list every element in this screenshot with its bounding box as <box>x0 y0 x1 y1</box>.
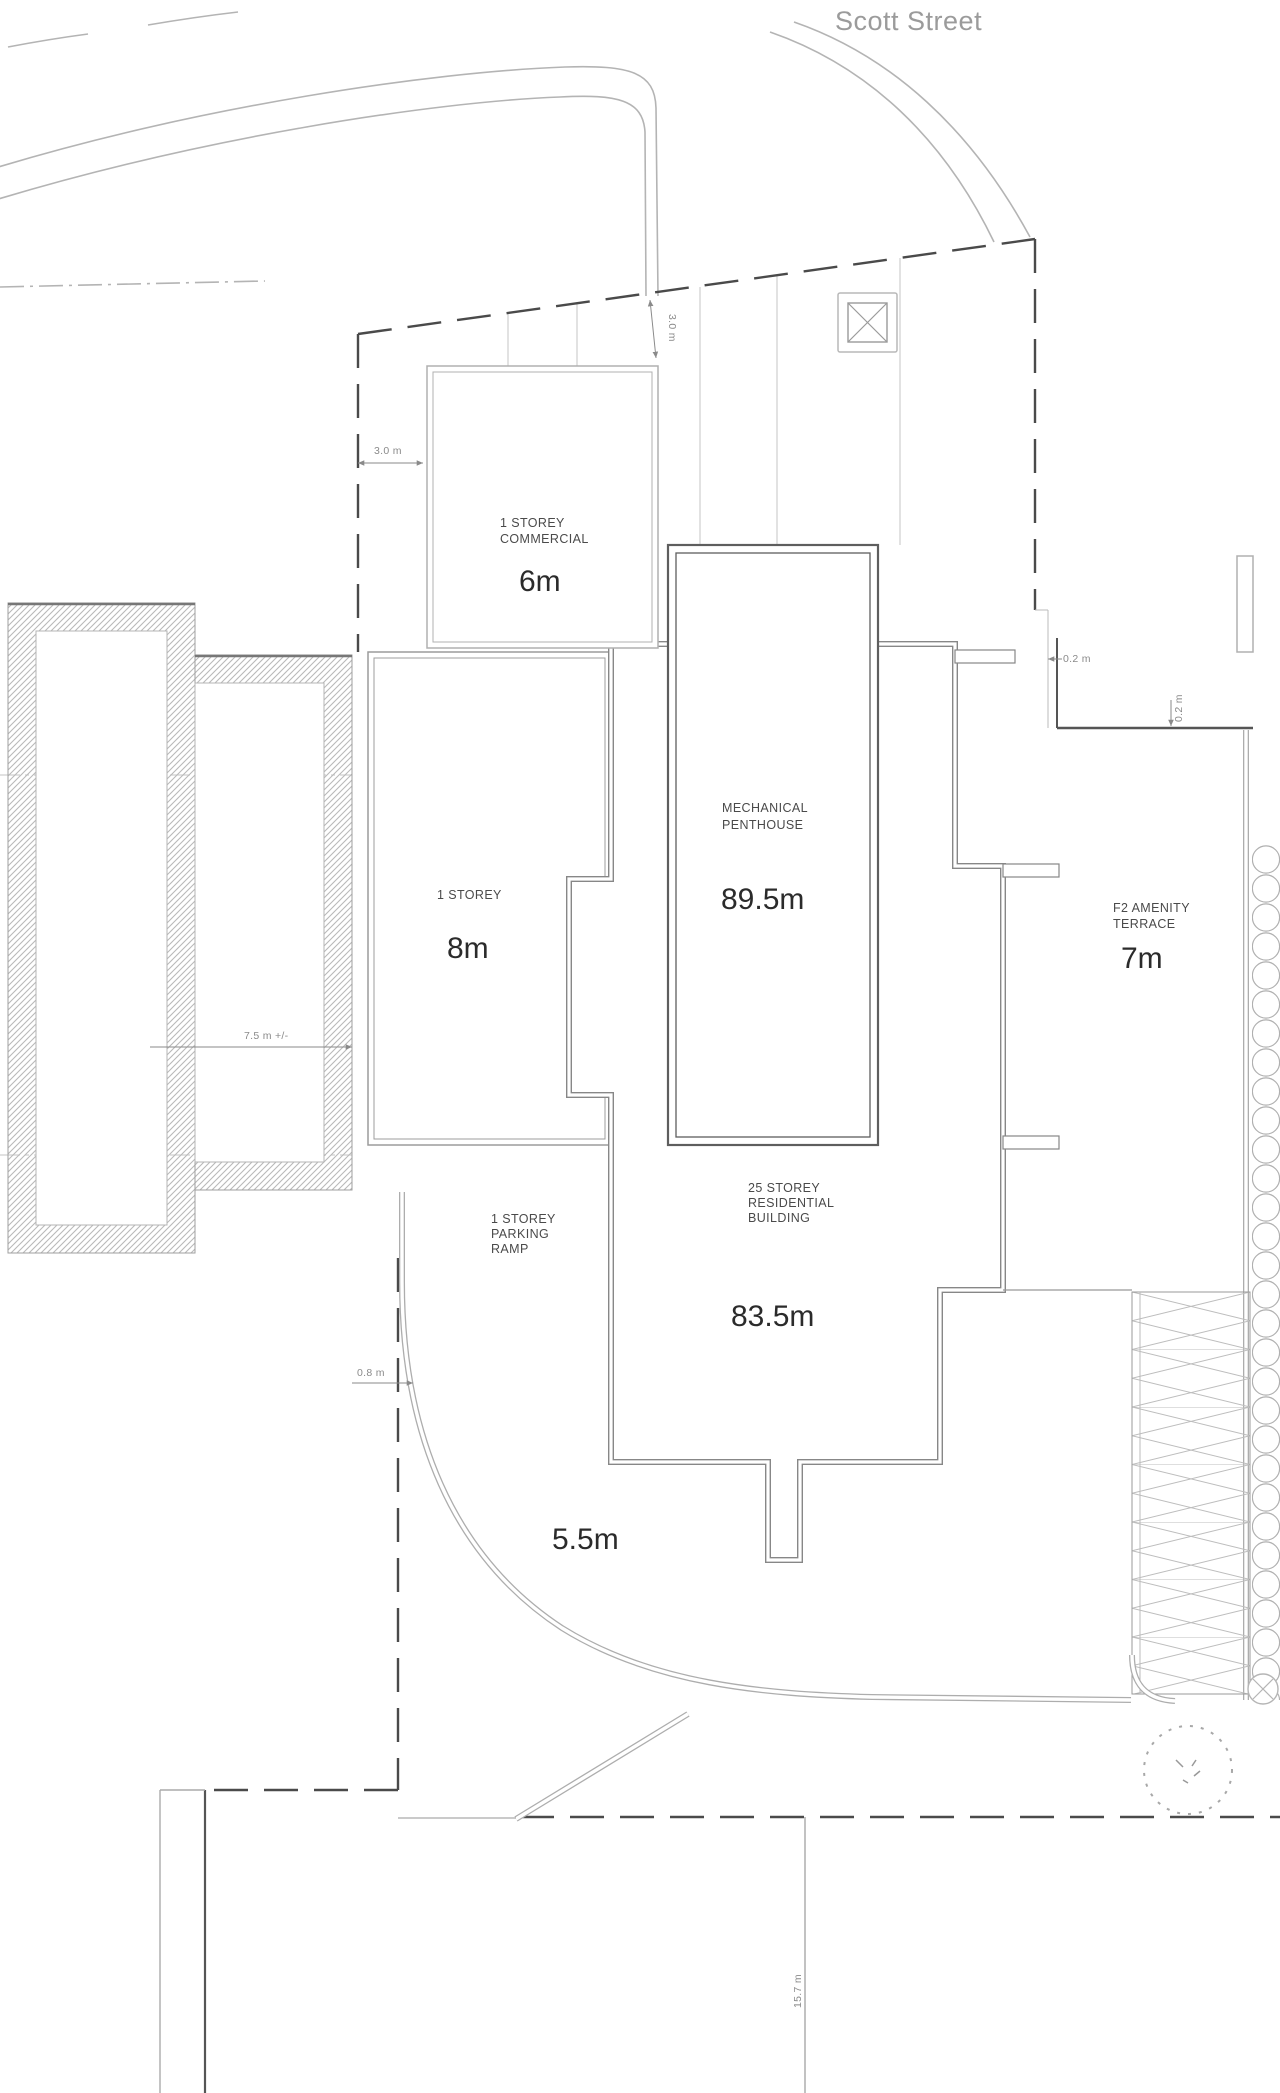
site-plan: Scott Street <box>0 0 1280 2093</box>
parking-label-line3: RAMP <box>491 1242 529 1256</box>
parking-height: 5.5m <box>552 1523 619 1556</box>
penthouse-height: 89.5m <box>721 883 804 916</box>
wall-fin <box>955 650 1015 663</box>
street-label: Scott Street <box>835 6 982 36</box>
dim-north-setback-left: 3.0 m <box>374 445 402 457</box>
dim-south-depth: 15.7 m <box>792 1974 804 2008</box>
commercial-label-line2: COMMERCIAL <box>500 532 589 546</box>
dim-west-setback: 0.8 m <box>357 1367 385 1379</box>
site-plan-drawing: Scott Street <box>0 0 1280 2093</box>
street-curbs <box>0 12 1030 296</box>
dim-east-setback-vertical: 0.2 m <box>1173 694 1185 722</box>
dim-north-setback-diagonal: 3.0 m <box>666 314 678 342</box>
amenity-label-line1: F2 AMENITY <box>1113 901 1190 915</box>
residential-label-line1: 25 STOREY <box>748 1181 820 1195</box>
commercial-height: 6m <box>519 565 561 598</box>
column-grid-symbol <box>838 293 897 352</box>
dim-east-setback: 0.2 m <box>1063 653 1091 665</box>
existing-building-west <box>0 603 352 1253</box>
residential-height: 83.5m <box>731 1300 814 1333</box>
east-boundary-detail <box>1035 610 1253 728</box>
residential-label-line3: BUILDING <box>748 1211 810 1225</box>
planter <box>1237 556 1253 652</box>
ramp-hatch-strip <box>1132 1292 1250 1694</box>
penthouse-label-line2: PENTHOUSE <box>722 818 803 832</box>
small-tree-symbol <box>1248 1674 1278 1704</box>
amenity-label-line2: TERRACE <box>1113 917 1176 931</box>
wall-fin <box>1003 864 1059 877</box>
shrub-row <box>1252 845 1280 1700</box>
penthouse-label-line1: MECHANICAL <box>722 801 808 815</box>
one-storey-height: 8m <box>447 932 489 965</box>
existing-wing-interior <box>195 683 324 1162</box>
tree-symbol <box>1144 1726 1232 1814</box>
commercial-building <box>427 366 658 648</box>
mechanical-penthouse <box>668 545 878 1145</box>
south-site-lines <box>160 1790 805 2093</box>
commercial-label-line1: 1 STOREY <box>500 516 565 530</box>
one-storey-label: 1 STOREY <box>437 888 502 902</box>
amenity-height: 7m <box>1121 942 1163 975</box>
existing-building-interior <box>36 631 167 1225</box>
parking-label-line2: PARKING <box>491 1227 549 1241</box>
wall-fin <box>1003 1136 1059 1149</box>
residential-label-line2: RESIDENTIAL <box>748 1196 834 1210</box>
dim-west-building-width: 7.5 m +/- <box>244 1030 289 1042</box>
parking-label-line1: 1 STOREY <box>491 1212 556 1226</box>
